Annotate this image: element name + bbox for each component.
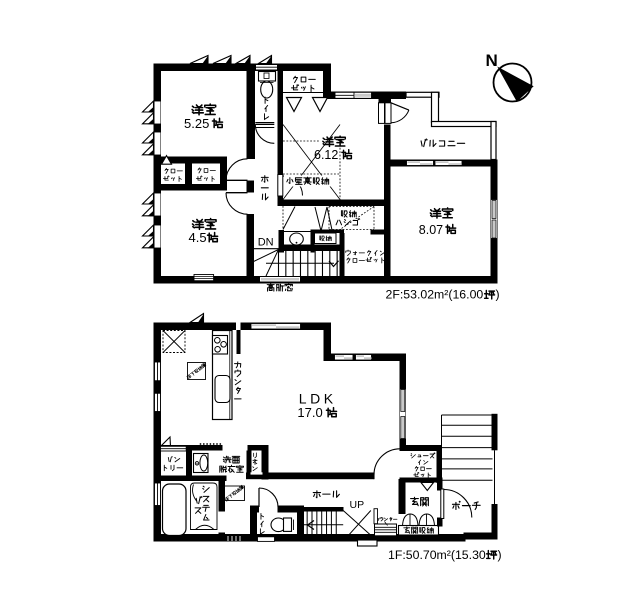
svg-text:DN: DN xyxy=(258,236,274,248)
svg-text:): ) xyxy=(498,548,502,562)
svg-text:4.5: 4.5 xyxy=(189,230,207,245)
svg-text:5.25: 5.25 xyxy=(184,116,209,131)
svg-text:6.12: 6.12 xyxy=(314,148,338,162)
svg-text:N: N xyxy=(486,51,498,70)
svg-text:1F:50.70m²(15.30: 1F:50.70m²(15.30 xyxy=(388,548,486,562)
svg-text:2F:53.02m²(16.00: 2F:53.02m²(16.00 xyxy=(386,288,484,302)
svg-text:UP: UP xyxy=(350,499,365,511)
svg-text:): ) xyxy=(496,288,500,302)
svg-text:8.07: 8.07 xyxy=(419,223,443,237)
svg-text:17.0: 17.0 xyxy=(297,405,322,420)
